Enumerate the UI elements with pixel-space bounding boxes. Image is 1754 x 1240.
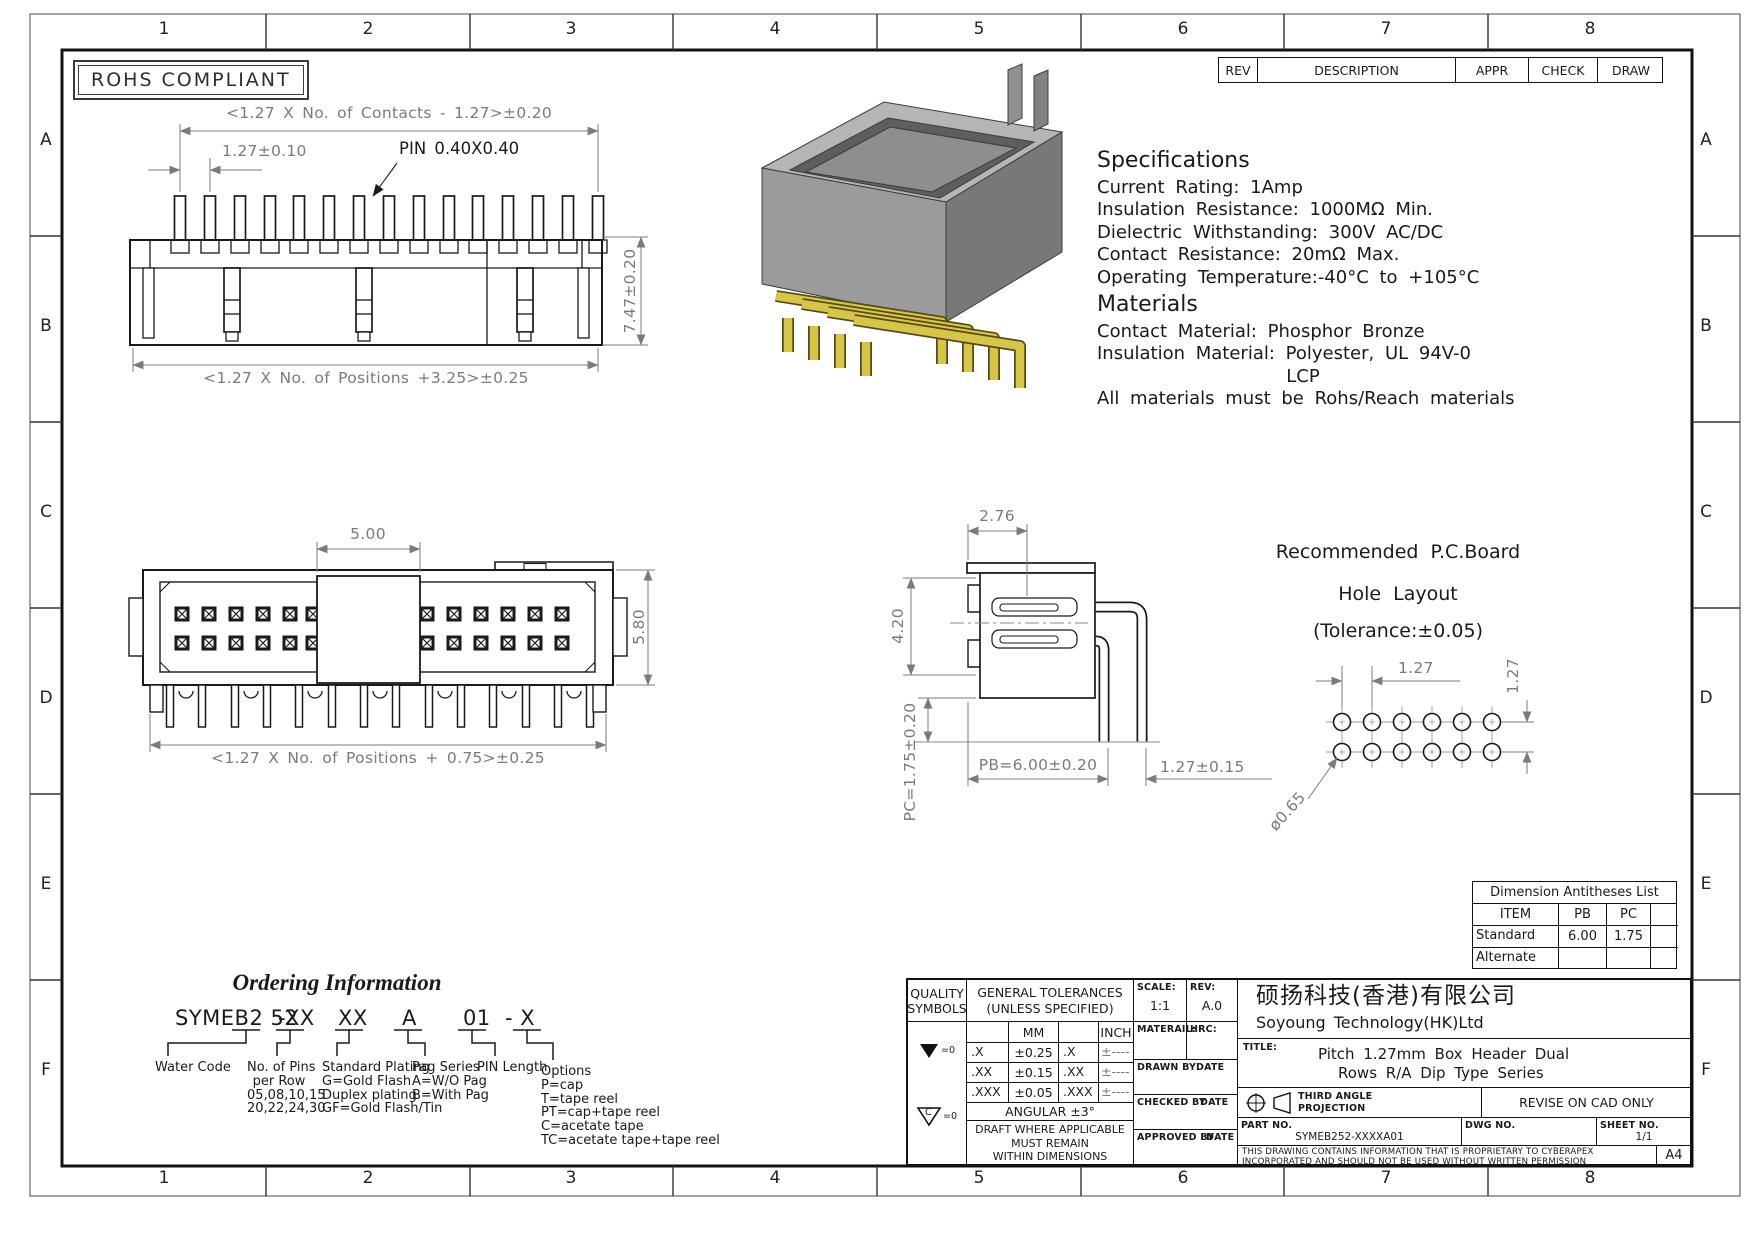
spec-current-rating: Current Rating: 1Amp	[1097, 177, 1509, 199]
zone-col-label: 3	[551, 1169, 591, 1189]
zone-col-label: 3	[551, 20, 591, 40]
drawn-by-label: DRAWN BY	[1137, 1062, 1196, 1073]
quality-symbols-header: QUALITY SYMBOLS	[908, 980, 967, 1022]
tol-row-mm: ±0.05	[1009, 1083, 1059, 1103]
zone-col-label: 4	[755, 20, 795, 40]
rohs-badge: ROHS COMPLIANT	[73, 60, 309, 100]
hole-layout-drawing	[1308, 666, 1534, 799]
antitheses-col-pb: PB	[1559, 904, 1607, 926]
material-insulation: Insulation Material: Polyester, UL 94V-0	[1097, 343, 1509, 365]
side-view-drawing	[903, 524, 1272, 786]
tolerances-title-line: (UNLESS SPECIFIED)	[986, 1001, 1113, 1017]
third-angle-projection-icon	[1244, 1090, 1294, 1118]
front-view-drawing	[129, 542, 655, 752]
tol-row-inch: ±----	[1099, 1083, 1134, 1103]
dim-lead-pitch: 1.27±0.15	[1160, 759, 1245, 777]
ordering-option-line: TC=acetate tape+tape reel	[541, 1134, 720, 1148]
ordering-pins-line: per Row	[247, 1075, 311, 1089]
appr-header: APPR	[1456, 58, 1529, 82]
angular-tolerance: ANGULAR ±3°	[967, 1103, 1134, 1121]
material-lcp: LCP	[1097, 366, 1509, 388]
drawing-sheet: 1 2 3 4 5 6 7 8 1 2 3 4 5 6 7 8 A B C D …	[0, 0, 1754, 1240]
ordering-code-plating: XX	[338, 1006, 368, 1030]
tol-hdr-inch: INCH	[1099, 1022, 1134, 1043]
zone-row-label: A	[26, 131, 66, 151]
ordering-pin-length: PIN Length	[477, 1061, 547, 1075]
hrc-label: HRC:	[1190, 1024, 1217, 1035]
spec-operating-temperature: Operating Temperature:-40°C to +105°C	[1097, 267, 1509, 289]
ordering-code-length: 01	[463, 1006, 491, 1030]
material-cell: MATERAIL:	[1134, 1022, 1187, 1060]
sheet-no-value: 1/1	[1636, 1131, 1653, 1143]
revision-strip: REV DESCRIPTION APPR CHECK DRAW	[1218, 57, 1663, 83]
ordering-pins-line: 05,08,10,15	[247, 1089, 311, 1103]
dim-side-height: 4.20	[890, 608, 908, 644]
checked-by-label: CHECKED BY	[1137, 1097, 1206, 1108]
part-no-cell: PART NO. SYMEB252-XXXXA01	[1238, 1118, 1462, 1145]
ordering-option-line: Options	[541, 1065, 720, 1079]
dim-contacts-span: <1.27 X No. of Contacts - 1.27>±0.20	[226, 105, 552, 123]
part-no-value: SYMEB252-XXXXA01	[1295, 1131, 1404, 1143]
dim-hole-pitch-v: 1.27	[1505, 658, 1523, 694]
zone-row-label: D	[1686, 689, 1726, 709]
antitheses-col-pc: PC	[1607, 904, 1651, 926]
tol-hdr-mm: MM	[1009, 1022, 1059, 1043]
antitheses-standard: Standard	[1473, 926, 1559, 948]
ordering-code-pag: A	[402, 1006, 417, 1030]
tol-row-label: .XX	[967, 1063, 1009, 1083]
dim-pc: PC=1.75±0.20	[902, 703, 920, 822]
disclaimer-cell: THIS DRAWING CONTAINS INFORMATION THAT I…	[1238, 1146, 1657, 1166]
drawn-by-cell: DRAWN BY DATE	[1134, 1060, 1238, 1095]
tol-row-label-inch: .XXX	[1059, 1083, 1099, 1103]
zone-row-label: B	[26, 317, 66, 337]
spec-contact-resistance: Contact Resistance: 20mΩ Max.	[1097, 244, 1509, 266]
ordering-pins-line: 20,22,24,30	[247, 1102, 311, 1116]
check-header: CHECK	[1529, 58, 1598, 82]
zone-col-label: 7	[1366, 20, 1406, 40]
tol-row-mm: ±0.15	[1009, 1063, 1059, 1083]
drawing-title-line-1: Pitch 1.27mm Box Header Dual	[1318, 1046, 1569, 1063]
zone-col-label: 7	[1366, 1169, 1406, 1189]
dim-height: 7.47±0.20	[622, 249, 640, 334]
approved-by-label: APPROVED BY	[1137, 1132, 1214, 1143]
pin-size-label: PIN 0.40X0.40	[399, 140, 519, 159]
title-cell: TITLE: Pitch 1.27mm Box Header Dual Rows…	[1238, 1039, 1691, 1088]
dim-pb: PB=6.00±0.20	[979, 757, 1098, 775]
antitheses-standard-pb: 6.00	[1559, 926, 1607, 948]
date-label: DATE	[1200, 1097, 1228, 1108]
ordering-plating-line: GF=Gold Flash/Tin	[322, 1102, 442, 1116]
dim-side-top: 2.76	[979, 508, 1015, 526]
approved-by-cell: APPROVED BY DATE	[1134, 1130, 1238, 1166]
general-tolerances-header: GENERAL TOLERANCES (UNLESS SPECIFIED)	[967, 980, 1134, 1022]
finish-symbol-note-2: =0	[943, 1112, 957, 1123]
finish-symbol-note: =0	[941, 1046, 955, 1057]
disclaimer-line-1: THIS DRAWING CONTAINS INFORMATION THAT I…	[1242, 1147, 1652, 1157]
title-label: TITLE:	[1243, 1042, 1277, 1053]
company-name-en: Soyoung Technology(HK)Ltd	[1256, 1014, 1484, 1032]
antitheses-col-blank	[1651, 904, 1678, 926]
spec-dielectric-withstanding: Dielectric Withstanding: 300V AC/DC	[1097, 222, 1509, 244]
rev-label: REV:	[1190, 982, 1215, 993]
specifications-block: Specifications Current Rating: 1Amp Insu…	[1097, 145, 1509, 411]
disclaimer-line-2: INCORPORATED AND SHOULD NOT BE USED WITH…	[1242, 1157, 1652, 1167]
antitheses-table: Dimension Antitheses List ITEM PB PC Sta…	[1472, 881, 1677, 969]
disclaimer-row: THIS DRAWING CONTAINS INFORMATION THAT I…	[1238, 1146, 1691, 1166]
checked-by-cell: CHECKED BY DATE	[1134, 1095, 1238, 1130]
draw-header: DRAW	[1598, 58, 1664, 82]
zone-col-label: 1	[144, 20, 184, 40]
quality-symbols-cell: =0 C =0	[908, 1022, 967, 1166]
paper-size: A4	[1657, 1146, 1691, 1166]
ordering-code-pins: -XX	[278, 1006, 315, 1030]
drawing-title-line-2: Rows R/A Dip Type Series	[1338, 1065, 1544, 1082]
zone-col-label: 1	[144, 1169, 184, 1189]
zone-col-label: 5	[959, 20, 999, 40]
sheet-no-cell: SHEET NO. 1/1	[1597, 1118, 1691, 1145]
tol-hdr-blank-2	[1059, 1022, 1099, 1043]
zone-col-label: 8	[1570, 20, 1610, 40]
zone-col-label: 6	[1163, 1169, 1203, 1189]
ordering-pins-block: No. of Pins per Row 05,08,10,15 20,22,24…	[247, 1061, 311, 1116]
specifications-title: Specifications	[1097, 148, 1509, 174]
dim-pitch: 1.27±0.10	[222, 143, 307, 161]
scale-label: SCALE:	[1137, 982, 1176, 993]
zone-row-label: E	[26, 875, 66, 895]
tol-row-inch: ±----	[1099, 1043, 1134, 1063]
date-label: DATE	[1196, 1062, 1224, 1073]
third-angle-label: THIRD ANGLE	[1298, 1091, 1372, 1102]
spec-insulation-resistance: Insulation Resistance: 1000MΩ Min.	[1097, 199, 1509, 221]
dwg-no-label: DWG NO.	[1465, 1120, 1515, 1131]
antitheses-col-item: ITEM	[1473, 904, 1559, 926]
hole-layout-title-2: Hole Layout	[1338, 584, 1458, 606]
zone-row-label: C	[26, 503, 66, 523]
tol-row-label: .XXX	[967, 1083, 1009, 1103]
ordering-options-block: Options P=cap T=tape reel PT=cap+tape re…	[541, 1065, 720, 1148]
ordering-option-line: C=acetate tape	[541, 1120, 720, 1134]
materials-note: All materials must be Rohs/Reach materia…	[1097, 388, 1509, 410]
tol-hdr-blank	[967, 1022, 1009, 1043]
rohs-badge-text: ROHS COMPLIANT	[78, 65, 304, 95]
ordering-option-line: T=tape reel	[541, 1093, 720, 1107]
ordering-pag-line: B=With Pag	[412, 1089, 489, 1103]
tolerances-title-line: GENERAL TOLERANCES	[977, 985, 1122, 1001]
rev-cell: REV: A.0	[1187, 980, 1238, 1022]
dim-key-width: 5.00	[350, 526, 386, 544]
rev-header: REV	[1219, 58, 1258, 82]
ordering-connector-lines	[168, 1030, 553, 1060]
zone-col-label: 6	[1163, 20, 1203, 40]
zone-col-label: 2	[348, 20, 388, 40]
dim-positions-span-2: <1.27 X No. of Positions + 0.75>±0.25	[211, 750, 545, 768]
sheet-no-label: SHEET NO.	[1600, 1120, 1659, 1131]
part-no-label: PART NO.	[1241, 1120, 1292, 1131]
part-row: PART NO. SYMEB252-XXXXA01 DWG NO. SHEET …	[1238, 1118, 1691, 1146]
ordering-pins-line: No. of Pins	[247, 1061, 311, 1075]
antitheses-alternate: Alternate	[1473, 948, 1559, 968]
scale-value: 1:1	[1150, 999, 1170, 1013]
projection-label: PROJECTION	[1298, 1103, 1365, 1114]
symbols-label: SYMBOLS	[907, 1001, 966, 1016]
ordering-pag-line: A=W/O Pag	[412, 1075, 489, 1089]
zone-row-label: A	[1686, 131, 1726, 151]
company-cell: 硕扬科技(香港)有限公司 Soyoung Technology(HK)Ltd	[1238, 980, 1691, 1039]
company-name-cn: 硕扬科技(香港)有限公司	[1256, 983, 1516, 1009]
zone-row-label: D	[26, 689, 66, 709]
draft-note-line: WITHIN DIMENSIONS	[993, 1150, 1108, 1164]
tol-row-label-inch: .XX	[1059, 1063, 1099, 1083]
isometric-view	[762, 64, 1062, 388]
ordering-option-line: PT=cap+tape reel	[541, 1106, 720, 1120]
zone-col-label: 4	[755, 1169, 795, 1189]
zone-col-label: 5	[959, 1169, 999, 1189]
zone-row-label: F	[26, 1061, 66, 1081]
projection-cell: THIRD ANGLE PROJECTION	[1238, 1088, 1482, 1117]
dim-hole-pitch-h: 1.27	[1398, 660, 1434, 678]
rev-value: A.0	[1202, 999, 1222, 1013]
zone-row-label: F	[1686, 1061, 1726, 1081]
finish-symbol-filled-icon	[908, 1022, 967, 1165]
ordering-title: Ordering Information	[233, 970, 442, 996]
material-contact: Contact Material: Phosphor Bronze	[1097, 321, 1509, 343]
draft-note-line: DRAFT WHERE APPLICABLE	[975, 1123, 1125, 1137]
zone-row-label: C	[1686, 503, 1726, 523]
tol-row-label-inch: .X	[1059, 1043, 1099, 1063]
top-view-drawing	[130, 124, 648, 372]
zone-row-label: B	[1686, 317, 1726, 337]
projection-row: THIRD ANGLE PROJECTION REVISE ON CAD ONL…	[1238, 1088, 1691, 1118]
antitheses-standard-pc: 1.75	[1607, 926, 1651, 948]
description-header: DESCRIPTION	[1258, 58, 1456, 82]
ordering-option-line: P=cap	[541, 1079, 720, 1093]
hole-layout-title-3: (Tolerance:±0.05)	[1313, 621, 1483, 643]
zone-col-label: 8	[1570, 1169, 1610, 1189]
hrc-cell: HRC:	[1187, 1022, 1238, 1060]
materials-title: Materials	[1097, 292, 1509, 318]
antitheses-alternate-pb	[1559, 948, 1607, 968]
date-label: DATE	[1206, 1132, 1234, 1143]
antitheses-title: Dimension Antitheses List	[1473, 882, 1676, 904]
tol-row-label: .X	[967, 1043, 1009, 1063]
ordering-code-option: - X	[505, 1006, 535, 1030]
dim-front-height: 5.80	[631, 609, 649, 645]
dwg-no-cell: DWG NO.	[1462, 1118, 1597, 1145]
draft-note: DRAFT WHERE APPLICABLE MUST REMAIN WITHI…	[967, 1121, 1134, 1166]
zone-row-label: E	[1686, 875, 1726, 895]
antitheses-alternate-pc	[1607, 948, 1651, 968]
revise-on-cad-only: REVISE ON CAD ONLY	[1482, 1088, 1691, 1117]
ordering-water-code: Water Code	[155, 1061, 231, 1075]
tol-row-inch: ±----	[1099, 1063, 1134, 1083]
quality-label: QUALITY	[910, 986, 963, 1001]
hole-layout-title-1: Recommended P.C.Board	[1276, 542, 1520, 564]
title-block: QUALITY SYMBOLS =0 C =0 GENERAL TOLERANC…	[906, 978, 1692, 1166]
draft-note-line: MUST REMAIN	[1011, 1137, 1089, 1151]
dim-positions-span: <1.27 X No. of Positions +3.25>±0.25	[203, 370, 529, 388]
finish-symbol-c: C	[925, 1108, 932, 1119]
scale-cell: SCALE: 1:1	[1134, 980, 1187, 1022]
zone-col-label: 2	[348, 1169, 388, 1189]
tol-row-mm: ±0.25	[1009, 1043, 1059, 1063]
